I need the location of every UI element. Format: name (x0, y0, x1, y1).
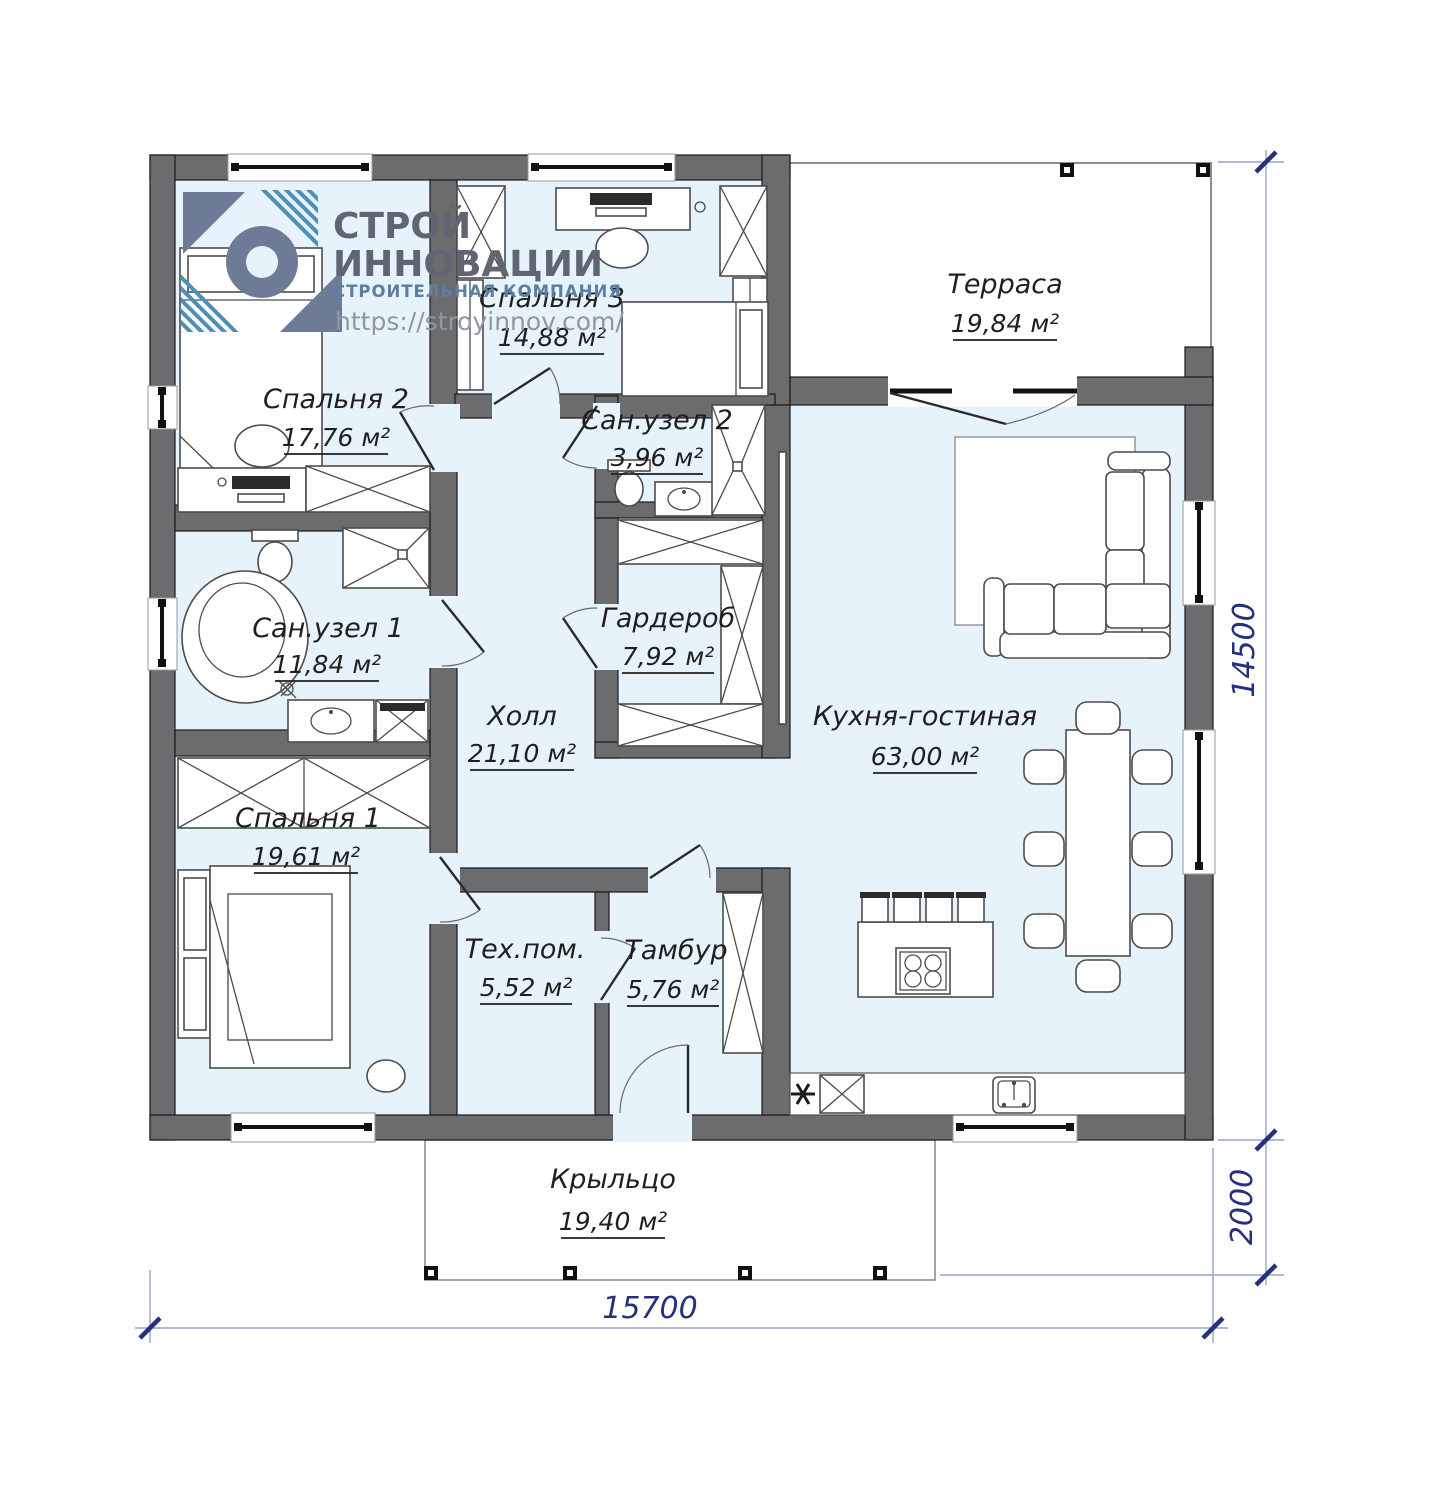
room-area: 11,84 м² (273, 650, 381, 679)
room-area: 5,76 м² (627, 975, 720, 1004)
room-area: 3,96 м² (611, 443, 704, 472)
room-area: 5,52 м² (480, 973, 573, 1002)
logo-url[interactable]: https://stroyinnov.com/ (335, 307, 624, 336)
window-bottom-bedroom1 (231, 1113, 375, 1142)
room-name: Спальня 1 (235, 803, 381, 834)
dimension-bottom: 15700 (602, 1291, 697, 1326)
room-area: 63,00 м² (871, 742, 979, 771)
room-area: 7,92 м² (622, 642, 715, 671)
floor-plan-drawing: Спальня 2 17,76 м² Спальня 3 14,88 м² Те… (0, 0, 1443, 1500)
room-name: Крыльцо (550, 1164, 676, 1195)
window-right-kitchen-lower (1183, 730, 1215, 874)
room-name: Тамбур (624, 935, 727, 966)
room-name: Терраса (947, 269, 1062, 300)
room-area: 17,76 м² (282, 423, 390, 452)
window-left-bedroom2 (148, 386, 177, 429)
room-name: Холл (485, 701, 557, 732)
room-name: Гардероб (601, 603, 735, 634)
room-name: Сан.узел 1 (252, 613, 404, 644)
vestibule-closet (723, 893, 763, 1053)
logo-title-line2: ИННОВАЦИИ (333, 244, 603, 285)
dimension-porch: 2000 (1225, 1169, 1260, 1245)
room-area: 21,10 м² (468, 739, 576, 768)
floor-plan-canvas: Спальня 2 17,76 м² Спальня 3 14,88 м² Те… (0, 0, 1443, 1500)
room-area: 19,61 м² (252, 842, 360, 871)
dimension-right: 14500 (1227, 602, 1262, 697)
logo-subtitle: СТРОИТЕЛЬНАЯ КОМПАНИЯ (333, 282, 622, 301)
kitchen-sink (993, 1077, 1035, 1113)
room-name: Спальня 2 (263, 384, 409, 415)
porch-deck (424, 1140, 935, 1280)
room-name: Сан.узел 2 (581, 405, 733, 436)
window-left-bathroom1 (148, 598, 177, 670)
cooktop (896, 948, 950, 994)
logo-title-line1: СТРОЙ (333, 205, 471, 247)
window-top-bedroom3 (528, 154, 675, 181)
window-top-bedroom2 (228, 154, 372, 181)
room-area: 19,84 м² (951, 309, 1059, 338)
room-name: Тех.пом. (465, 934, 586, 965)
room-area: 19,40 м² (559, 1207, 667, 1236)
window-bottom-kitchen (953, 1113, 1077, 1142)
room-name: Кухня-гостиная (813, 701, 1037, 732)
window-right-kitchen-upper (1183, 501, 1215, 605)
